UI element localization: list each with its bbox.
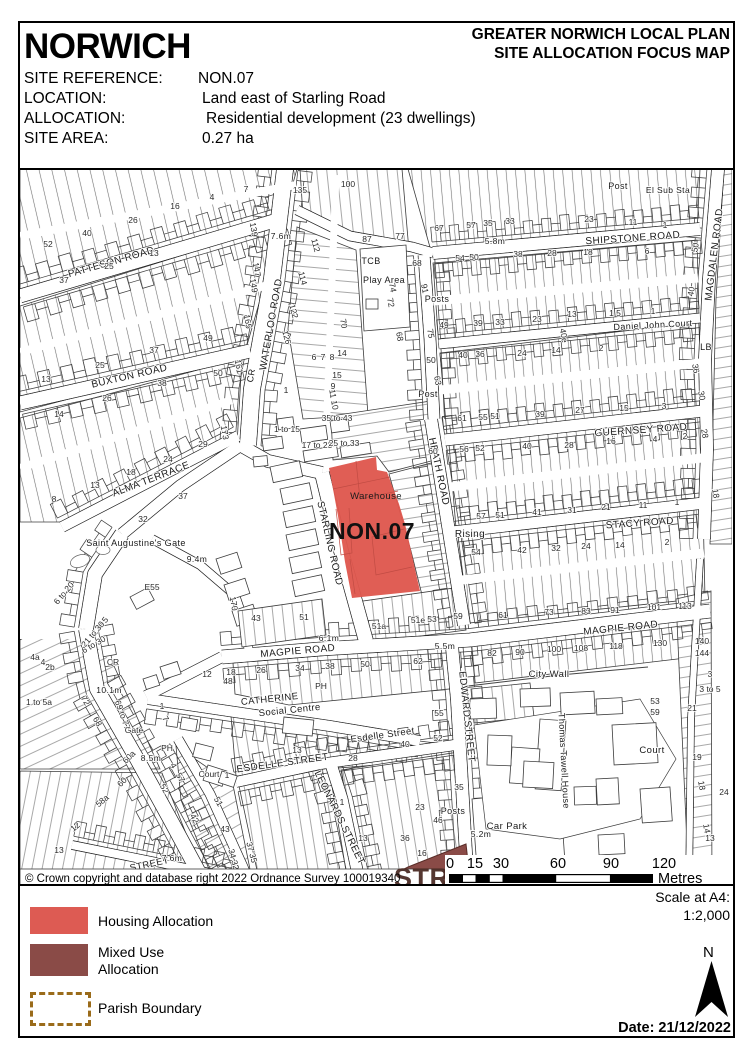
svg-text:87: 87 — [362, 234, 372, 244]
svg-text:15: 15 — [467, 856, 483, 872]
svg-text:52: 52 — [433, 733, 443, 743]
svg-text:0: 0 — [446, 856, 454, 872]
svg-text:28: 28 — [699, 428, 711, 439]
svg-text:77: 77 — [395, 231, 405, 241]
svg-text:51: 51 — [495, 510, 505, 520]
svg-text:51: 51 — [490, 411, 500, 421]
svg-text:32: 32 — [138, 514, 148, 524]
svg-text:El Sub Sta: El Sub Sta — [646, 185, 690, 195]
svg-text:2: 2 — [683, 431, 688, 441]
svg-text:Warehouse: Warehouse — [350, 491, 402, 502]
svg-text:24: 24 — [719, 787, 729, 797]
svg-text:75: 75 — [425, 328, 437, 339]
svg-text:16: 16 — [417, 848, 427, 858]
svg-text:23: 23 — [415, 802, 425, 812]
svg-text:36: 36 — [475, 349, 485, 359]
svg-text:23: 23 — [584, 214, 594, 224]
svg-text:18: 18 — [126, 467, 136, 477]
svg-text:49: 49 — [203, 333, 213, 343]
svg-text:CR: CR — [107, 657, 119, 667]
svg-text:6: 6 — [312, 352, 317, 362]
svg-text:91: 91 — [610, 605, 620, 615]
svg-text:91: 91 — [419, 283, 431, 294]
svg-text:4a: 4a — [30, 652, 40, 662]
svg-text:90: 90 — [603, 856, 619, 872]
svg-text:50: 50 — [426, 355, 436, 365]
svg-text:55: 55 — [434, 708, 444, 718]
svg-text:70: 70 — [338, 318, 350, 329]
svg-text:30: 30 — [696, 390, 708, 401]
svg-text:130: 130 — [653, 638, 667, 648]
svg-text:1: 1 — [284, 385, 289, 395]
svg-text:54: 54 — [471, 547, 481, 557]
svg-text:51e: 51e — [411, 615, 425, 625]
svg-text:16: 16 — [606, 436, 616, 446]
svg-text:40: 40 — [82, 228, 92, 238]
svg-text:28: 28 — [564, 440, 574, 450]
svg-text:82: 82 — [487, 648, 497, 658]
svg-text:8: 8 — [52, 494, 57, 504]
svg-text:34: 34 — [295, 663, 305, 673]
svg-text:48: 48 — [223, 676, 233, 686]
svg-text:50: 50 — [689, 242, 701, 253]
svg-text:14: 14 — [337, 348, 347, 358]
svg-text:50: 50 — [469, 252, 479, 262]
svg-text:1: 1 — [651, 306, 656, 316]
svg-text:13: 13 — [90, 480, 100, 490]
svg-text:Rising: Rising — [455, 529, 485, 540]
svg-text:29: 29 — [198, 439, 208, 449]
svg-text:1: 1 — [225, 770, 230, 780]
svg-text:26: 26 — [256, 665, 266, 675]
svg-text:25: 25 — [104, 261, 114, 271]
svg-text:90: 90 — [515, 647, 525, 657]
svg-text:40: 40 — [522, 441, 532, 451]
svg-text:36: 36 — [690, 363, 702, 374]
svg-text:9.4m: 9.4m — [187, 554, 208, 564]
svg-text:6.1m: 6.1m — [319, 633, 340, 643]
svg-text:67: 67 — [434, 223, 444, 233]
svg-text:26: 26 — [102, 393, 112, 403]
svg-text:53: 53 — [427, 614, 437, 624]
svg-text:8: 8 — [330, 352, 335, 362]
svg-text:City Wall: City Wall — [529, 669, 570, 680]
svg-text:108: 108 — [574, 643, 588, 653]
svg-text:113: 113 — [678, 601, 692, 611]
svg-text:30: 30 — [493, 856, 509, 872]
svg-text:23: 23 — [532, 314, 542, 324]
svg-text:35: 35 — [454, 782, 464, 792]
svg-text:46: 46 — [433, 815, 443, 825]
svg-text:8.5m: 8.5m — [141, 753, 162, 763]
svg-text:14: 14 — [615, 540, 625, 550]
svg-text:25 to 33: 25 to 33 — [329, 438, 360, 448]
svg-text:1 5: 1 5 — [609, 308, 621, 318]
svg-text:37: 37 — [149, 345, 159, 355]
svg-text:21: 21 — [687, 703, 697, 713]
svg-text:Metres: Metres — [658, 871, 702, 884]
svg-text:49: 49 — [439, 320, 449, 330]
svg-text:3 to 5: 3 to 5 — [699, 684, 721, 694]
svg-text:42: 42 — [517, 545, 527, 555]
svg-text:72: 72 — [385, 297, 397, 308]
svg-text:Posts: Posts — [425, 294, 450, 304]
svg-text:13: 13 — [149, 248, 159, 258]
svg-text:56: 56 — [459, 444, 469, 454]
svg-text:68: 68 — [394, 331, 406, 342]
svg-text:39: 39 — [473, 318, 483, 328]
svg-text:73: 73 — [544, 607, 554, 617]
svg-text:1: 1 — [663, 220, 668, 230]
svg-text:43: 43 — [251, 613, 261, 623]
svg-text:LB: LB — [700, 342, 712, 352]
svg-text:2: 2 — [599, 343, 604, 353]
svg-text:Post: Post — [608, 181, 628, 191]
svg-text:33: 33 — [505, 216, 515, 226]
svg-text:7.6m: 7.6m — [271, 231, 292, 241]
svg-text:11: 11 — [639, 500, 648, 510]
svg-text:83: 83 — [581, 606, 591, 616]
svg-text:Play Area: Play Area — [363, 275, 405, 285]
svg-text:© Crown copyright and database: © Crown copyright and database right 202… — [25, 873, 400, 884]
svg-text:1: 1 — [160, 701, 165, 711]
svg-text:100: 100 — [341, 179, 355, 189]
svg-text:52: 52 — [475, 443, 485, 453]
svg-text:51: 51 — [299, 612, 309, 622]
svg-text:Court: Court — [639, 745, 664, 756]
svg-text:55: 55 — [478, 412, 488, 422]
svg-text:40: 40 — [458, 350, 468, 360]
svg-text:33: 33 — [495, 317, 505, 327]
svg-text:57: 57 — [476, 511, 486, 521]
svg-text:Saint Augustine's Gate: Saint Augustine's Gate — [86, 538, 186, 548]
svg-text:101: 101 — [647, 602, 661, 612]
svg-text:14: 14 — [54, 409, 64, 419]
svg-text:28: 28 — [348, 753, 358, 763]
svg-text:15: 15 — [332, 370, 342, 380]
svg-text:36: 36 — [400, 833, 410, 843]
svg-text:62: 62 — [413, 656, 423, 666]
svg-text:2: 2 — [665, 537, 670, 547]
svg-text:35: 35 — [483, 218, 493, 228]
svg-text:60: 60 — [550, 856, 566, 872]
svg-text:57: 57 — [466, 220, 476, 230]
svg-text:19: 19 — [692, 752, 702, 762]
svg-text:13: 13 — [41, 374, 51, 384]
svg-text:37: 37 — [59, 275, 69, 285]
svg-text:39: 39 — [535, 409, 545, 419]
svg-text:PH: PH — [161, 743, 173, 753]
svg-text:40: 40 — [400, 739, 410, 749]
svg-text:63: 63 — [432, 375, 444, 386]
svg-text:37: 37 — [178, 491, 188, 501]
svg-text:13: 13 — [358, 833, 368, 843]
svg-text:13: 13 — [54, 845, 64, 855]
svg-text:40: 40 — [685, 286, 697, 297]
svg-text:PH: PH — [315, 681, 327, 691]
svg-text:18: 18 — [696, 780, 708, 791]
svg-text:32: 32 — [551, 543, 561, 553]
svg-text:59: 59 — [453, 611, 463, 621]
svg-text:13: 13 — [567, 309, 577, 319]
svg-text:3: 3 — [662, 401, 667, 411]
svg-text:7: 7 — [244, 184, 249, 194]
svg-text:21: 21 — [601, 502, 611, 512]
svg-text:7: 7 — [321, 352, 326, 362]
svg-text:TCB: TCB — [361, 256, 380, 266]
svg-text:60: 60 — [428, 446, 438, 456]
svg-text:18: 18 — [710, 488, 722, 499]
svg-text:118: 118 — [609, 641, 623, 651]
svg-text:1: 1 — [340, 797, 345, 807]
svg-text:38: 38 — [325, 661, 335, 671]
svg-text:13: 13 — [292, 745, 302, 755]
svg-text:4: 4 — [210, 192, 215, 202]
svg-text:5.2m: 5.2m — [471, 829, 492, 839]
svg-text:140: 140 — [695, 636, 709, 646]
svg-text:51a: 51a — [372, 621, 386, 631]
svg-text:10.1m: 10.1m — [96, 685, 122, 695]
svg-text:2b: 2b — [45, 662, 55, 672]
svg-text:E55: E55 — [144, 582, 159, 592]
svg-text:11: 11 — [629, 217, 638, 227]
svg-text:6: 6 — [645, 246, 650, 256]
svg-text:100: 100 — [547, 644, 561, 654]
svg-text:7.6m: 7.6m — [162, 853, 183, 863]
svg-text:1 to 15: 1 to 15 — [274, 424, 300, 434]
svg-text:144: 144 — [695, 648, 709, 658]
svg-text:135: 135 — [293, 185, 307, 195]
svg-text:26: 26 — [128, 215, 138, 225]
svg-text:Posts: Posts — [441, 806, 466, 816]
svg-text:38: 38 — [513, 249, 523, 259]
svg-text:35 to 43: 35 to 43 — [322, 413, 353, 423]
svg-text:43: 43 — [220, 824, 230, 834]
svg-text:61: 61 — [498, 610, 508, 620]
svg-text:54: 54 — [455, 253, 465, 263]
svg-text:16: 16 — [170, 201, 180, 211]
svg-text:41: 41 — [532, 507, 542, 517]
svg-text:12: 12 — [202, 669, 212, 679]
svg-text:24: 24 — [581, 541, 591, 551]
svg-text:68: 68 — [412, 258, 422, 268]
svg-text:14: 14 — [551, 345, 561, 355]
svg-text:120: 120 — [652, 856, 676, 872]
svg-text:Court: Court — [199, 769, 220, 779]
svg-text:1 to 5a: 1 to 5a — [26, 697, 52, 707]
svg-text:5.8m: 5.8m — [485, 236, 506, 246]
svg-text:13: 13 — [705, 833, 715, 843]
svg-text:61: 61 — [457, 413, 467, 423]
svg-text:53: 53 — [650, 696, 660, 706]
svg-text:24: 24 — [517, 348, 527, 358]
svg-text:4: 4 — [653, 434, 658, 444]
svg-text:NON.07: NON.07 — [329, 518, 415, 544]
svg-text:3: 3 — [708, 669, 713, 679]
svg-text:25: 25 — [95, 360, 105, 370]
svg-text:28: 28 — [547, 248, 557, 258]
svg-text:38: 38 — [157, 378, 167, 388]
svg-text:18: 18 — [583, 247, 593, 257]
svg-text:5.5m: 5.5m — [435, 641, 456, 651]
svg-text:1: 1 — [675, 497, 680, 507]
svg-text:59: 59 — [650, 707, 660, 717]
svg-text:74: 74 — [387, 282, 399, 293]
svg-text:50: 50 — [360, 659, 370, 669]
svg-text:15: 15 — [619, 403, 629, 413]
svg-text:Gate: Gate — [125, 725, 144, 735]
svg-text:31: 31 — [567, 505, 577, 515]
svg-text:52: 52 — [43, 239, 53, 249]
svg-text:Post: Post — [418, 389, 438, 399]
svg-text:50: 50 — [213, 368, 223, 378]
svg-text:24: 24 — [163, 454, 173, 464]
svg-text:27: 27 — [575, 405, 585, 415]
svg-text:Car Park: Car Park — [487, 821, 528, 832]
